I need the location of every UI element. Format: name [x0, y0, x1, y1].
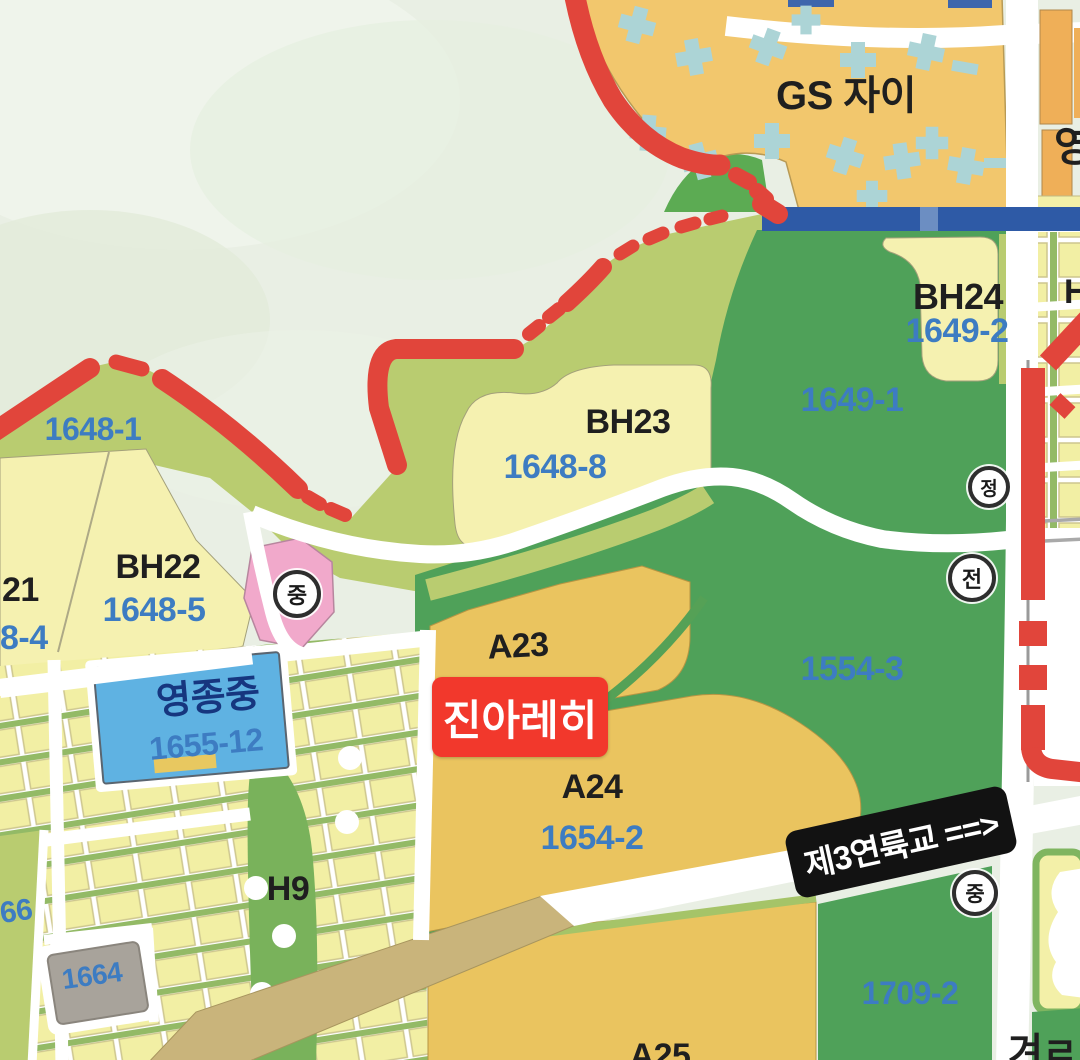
- label-num-1648-5: 1648-5: [103, 593, 206, 627]
- label-num-1648-1: 1648-1: [45, 413, 142, 445]
- parcel-strip: [1040, 10, 1072, 124]
- label-a25-partial: A25: [630, 1039, 691, 1060]
- label-num-1648-4-part: 8-4: [0, 621, 48, 655]
- map-stage[interactable]: 진아레히 제3연륙교 ==> GS 자이영BH241649-21649-1H16…: [0, 0, 1080, 1060]
- parcel-strip: [1074, 28, 1080, 118]
- red-boundary-dash: [1019, 621, 1047, 646]
- label-bh22: BH22: [116, 550, 201, 584]
- blue-mark: [948, 0, 992, 8]
- red-boundary-dash: [1019, 665, 1047, 690]
- east-parcel-blob: [1048, 868, 1080, 998]
- label-yeong-partial: 영: [1054, 126, 1080, 168]
- label-num-1654-2: 1654-2: [541, 821, 644, 855]
- label-bh24: BH24: [913, 279, 1003, 315]
- map-canvas: [0, 0, 1080, 1060]
- label-br-partial: 겨ㄹ: [1008, 1034, 1077, 1060]
- label-num-1649-1: 1649-1: [801, 383, 904, 417]
- label-num-1648-8: 1648-8: [504, 450, 607, 484]
- jina-rehi-marker[interactable]: 진아레히: [432, 677, 608, 757]
- jeong-circle-icon: 정: [968, 466, 1010, 508]
- school-mid-south-icon: 중: [952, 870, 998, 916]
- label-bh23: BH23: [586, 405, 671, 439]
- label-h9: H9: [267, 872, 309, 906]
- label-a24: A24: [562, 770, 623, 804]
- label-a23: A23: [487, 627, 550, 664]
- label-gs-jai: GS 자이: [776, 76, 916, 116]
- school-mid-west-icon: 중: [273, 570, 321, 618]
- label-num-1709-2: 1709-2: [862, 977, 959, 1009]
- label-num-66-partial: 66: [0, 895, 34, 929]
- label-num-1649-2: 1649-2: [906, 314, 1009, 348]
- label-bh21-partial: 21: [2, 573, 39, 607]
- label-yeongjong-mid: 영종중: [155, 675, 261, 722]
- label-h-partial: H: [1064, 275, 1080, 309]
- label-num-1554-3: 1554-3: [801, 652, 904, 686]
- jeon-circle-icon: 전: [948, 554, 996, 602]
